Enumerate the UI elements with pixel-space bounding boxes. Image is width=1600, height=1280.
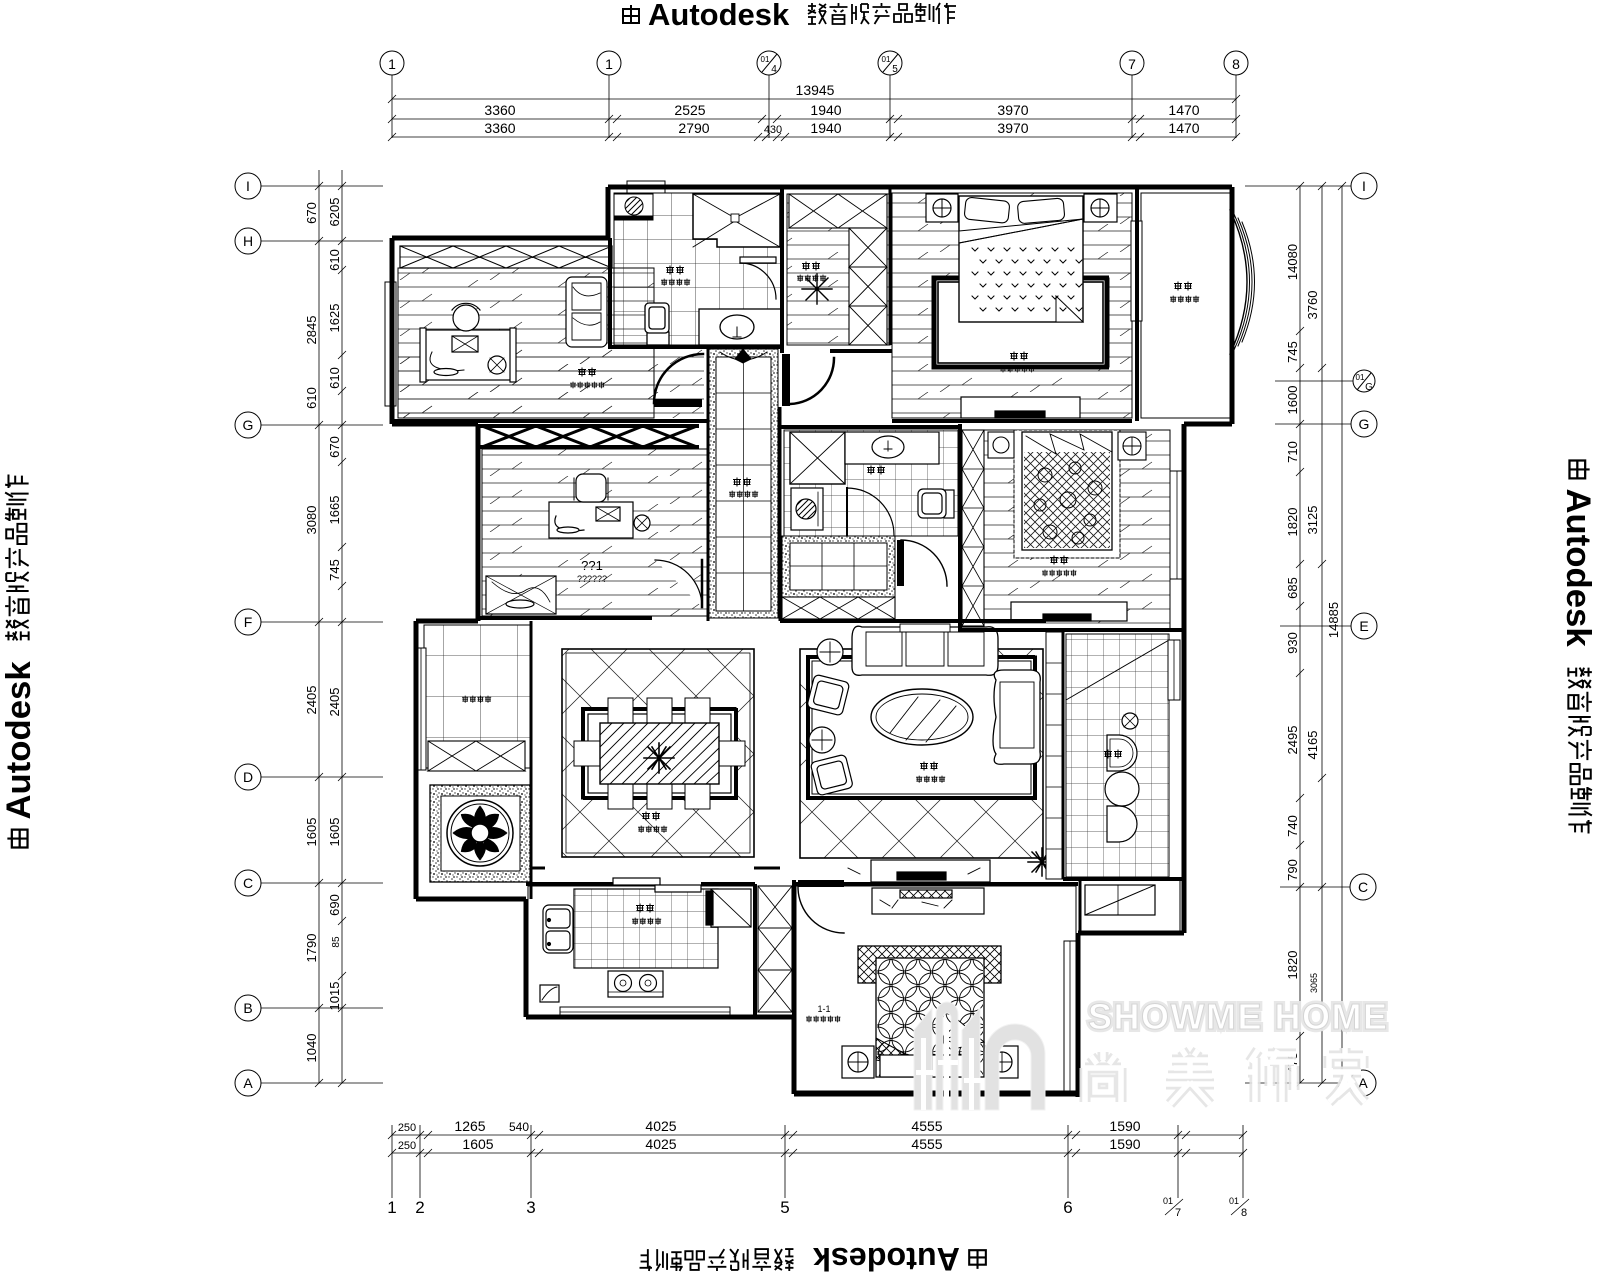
svg-text:14080: 14080 bbox=[1285, 244, 1300, 280]
svg-text:1-1: 1-1 bbox=[817, 1004, 830, 1014]
svg-text:2845: 2845 bbox=[304, 316, 319, 345]
svg-text:2525: 2525 bbox=[674, 102, 705, 118]
svg-text:A: A bbox=[243, 1075, 253, 1091]
svg-text:D: D bbox=[243, 769, 253, 785]
svg-text:13945: 13945 bbox=[796, 82, 835, 98]
svg-text:01: 01 bbox=[882, 55, 891, 64]
svg-text:??1: ??1 bbox=[581, 558, 603, 573]
svg-text:430: 430 bbox=[764, 124, 782, 136]
svg-text:610: 610 bbox=[304, 387, 319, 409]
svg-text:670: 670 bbox=[304, 202, 319, 224]
svg-text:C: C bbox=[243, 875, 253, 891]
svg-text:1470: 1470 bbox=[1168, 102, 1199, 118]
svg-text:C: C bbox=[1358, 879, 1368, 895]
svg-text:01: 01 bbox=[761, 55, 770, 64]
svg-text:3065: 3065 bbox=[1309, 973, 1319, 993]
svg-text:4025: 4025 bbox=[645, 1118, 676, 1134]
svg-text:3080: 3080 bbox=[304, 506, 319, 535]
svg-text:01: 01 bbox=[1229, 1196, 1239, 1206]
svg-text:610: 610 bbox=[327, 367, 342, 389]
svg-text:E: E bbox=[1359, 618, 1368, 634]
svg-text:01: 01 bbox=[1163, 1196, 1173, 1206]
svg-text:2405: 2405 bbox=[304, 686, 319, 715]
svg-text:3125: 3125 bbox=[1305, 506, 1320, 535]
svg-text:250: 250 bbox=[398, 1140, 416, 1152]
svg-text:H: H bbox=[243, 233, 253, 249]
svg-text:I: I bbox=[1362, 178, 1366, 194]
svg-text:250: 250 bbox=[398, 1122, 416, 1134]
svg-text:3360: 3360 bbox=[484, 102, 515, 118]
svg-text:1665: 1665 bbox=[327, 496, 342, 525]
svg-text:6: 6 bbox=[1063, 1198, 1072, 1217]
svg-text:1: 1 bbox=[388, 56, 396, 72]
svg-text:2495: 2495 bbox=[1285, 726, 1300, 755]
svg-text:B: B bbox=[243, 1000, 252, 1016]
svg-text:2790: 2790 bbox=[678, 120, 709, 136]
svg-text:610: 610 bbox=[327, 249, 342, 271]
svg-text:8: 8 bbox=[1241, 1207, 1247, 1219]
svg-text:7: 7 bbox=[1175, 1207, 1181, 1219]
svg-text:1470: 1470 bbox=[1168, 120, 1199, 136]
svg-text:14885: 14885 bbox=[1326, 602, 1341, 638]
svg-text:790: 790 bbox=[1285, 859, 1300, 881]
svg-text:740: 740 bbox=[1285, 815, 1300, 837]
svg-text:G: G bbox=[1365, 382, 1373, 393]
svg-text:1040: 1040 bbox=[304, 1034, 319, 1063]
svg-text:4025: 4025 bbox=[645, 1136, 676, 1152]
svg-text:1940: 1940 bbox=[810, 120, 841, 136]
svg-text:??????: ?????? bbox=[577, 574, 607, 584]
svg-text:930: 930 bbox=[1285, 632, 1300, 654]
svg-text:5: 5 bbox=[780, 1198, 789, 1217]
svg-text:690: 690 bbox=[327, 894, 342, 916]
svg-text:4165: 4165 bbox=[1305, 731, 1320, 760]
svg-text:1590: 1590 bbox=[1109, 1118, 1140, 1134]
svg-text:1: 1 bbox=[387, 1198, 396, 1217]
svg-text:1265: 1265 bbox=[454, 1118, 485, 1134]
svg-text:F: F bbox=[244, 614, 253, 630]
svg-text:2405: 2405 bbox=[327, 688, 342, 717]
svg-text:4555: 4555 bbox=[911, 1118, 942, 1134]
svg-text:1605: 1605 bbox=[304, 818, 319, 847]
svg-text:1605: 1605 bbox=[462, 1136, 493, 1152]
svg-text:1600: 1600 bbox=[1285, 386, 1300, 415]
svg-text:3360: 3360 bbox=[484, 120, 515, 136]
svg-text:745: 745 bbox=[327, 559, 342, 581]
svg-text:G: G bbox=[243, 417, 254, 433]
svg-text:3760: 3760 bbox=[1305, 291, 1320, 320]
svg-text:1625: 1625 bbox=[327, 304, 342, 333]
svg-text:1015: 1015 bbox=[327, 982, 342, 1011]
svg-text:4555: 4555 bbox=[911, 1136, 942, 1152]
svg-text:1820: 1820 bbox=[1285, 508, 1300, 537]
svg-text:1790: 1790 bbox=[304, 934, 319, 963]
svg-text:I: I bbox=[246, 178, 250, 194]
svg-text:1590: 1590 bbox=[1109, 1136, 1140, 1152]
svg-text:85: 85 bbox=[331, 936, 342, 948]
svg-text:3: 3 bbox=[526, 1198, 535, 1217]
svg-text:01: 01 bbox=[1356, 373, 1365, 382]
svg-text:540: 540 bbox=[509, 1120, 529, 1134]
svg-text:8: 8 bbox=[1232, 56, 1240, 72]
svg-text:G: G bbox=[1359, 416, 1370, 432]
svg-text:2: 2 bbox=[415, 1198, 424, 1217]
svg-text:6205: 6205 bbox=[327, 198, 342, 227]
svg-text:7: 7 bbox=[1128, 56, 1136, 72]
svg-text:745: 745 bbox=[1285, 341, 1300, 363]
svg-text:SHOWME HOME: SHOWME HOME bbox=[1088, 996, 1389, 1037]
svg-text:670: 670 bbox=[327, 436, 342, 458]
svg-text:685: 685 bbox=[1285, 577, 1300, 599]
svg-text:1605: 1605 bbox=[327, 818, 342, 847]
svg-text:4: 4 bbox=[771, 64, 777, 75]
svg-text:1820: 1820 bbox=[1285, 951, 1300, 980]
svg-text:3970: 3970 bbox=[997, 102, 1028, 118]
svg-text:5: 5 bbox=[892, 64, 898, 75]
svg-text:1940: 1940 bbox=[810, 102, 841, 118]
svg-text:710: 710 bbox=[1285, 441, 1300, 463]
svg-text:1: 1 bbox=[605, 56, 613, 72]
svg-text:3970: 3970 bbox=[997, 120, 1028, 136]
